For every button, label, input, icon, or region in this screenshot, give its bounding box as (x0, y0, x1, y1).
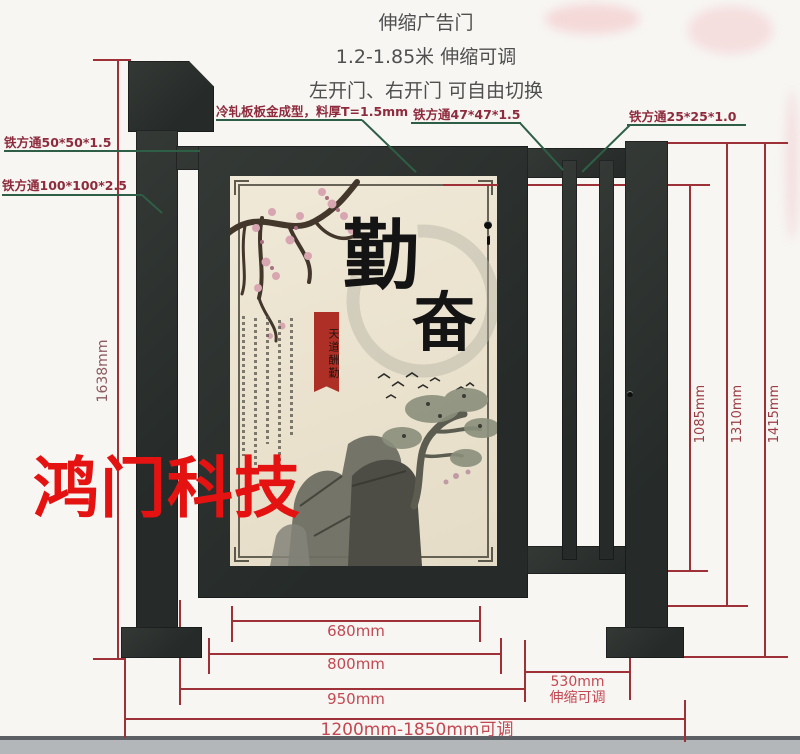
poster-char-fen: 奋 (412, 292, 476, 356)
dim-line (208, 638, 210, 674)
dim-line (93, 59, 131, 61)
watermark: 鸿门科技 (33, 456, 301, 522)
dim-total-width: 1200mm-1850mm可调 (307, 722, 527, 738)
dim-inner-height: 1085mm (693, 379, 709, 449)
poster-char-qin: 勤 (343, 218, 419, 294)
dim-ext-note: 伸缩可调 (530, 690, 625, 706)
callout-tube50: 铁方通50*50*1.5 (4, 132, 112, 151)
leader-line (411, 122, 521, 124)
poster-text-column (266, 316, 269, 444)
poster-text-column (242, 316, 245, 456)
right-post-base (606, 627, 684, 658)
poster-seal: 天道酬勤 (314, 312, 339, 392)
leader-line (2, 194, 142, 196)
dim-line (231, 606, 233, 642)
door-lock (484, 221, 492, 229)
dim-line (689, 184, 691, 571)
product-note: 左开门、右开门 可自由切换 (254, 76, 598, 103)
dim-fence-height: 1310mm (730, 379, 746, 449)
dim-line (479, 606, 481, 642)
dim-line (124, 658, 126, 738)
dim-line (764, 142, 766, 657)
floor-strip (0, 740, 800, 754)
left-post-base (121, 627, 202, 658)
dim-post-height: 1415mm (767, 379, 783, 449)
dim-total-height: 1638mm (95, 336, 111, 406)
leader-line (216, 119, 362, 121)
leader-line (4, 150, 200, 152)
poster-text-column (278, 320, 281, 466)
dim-line (524, 671, 631, 673)
post-lock (627, 391, 633, 397)
dim-line (726, 142, 728, 606)
dim-poster-width: 680mm (306, 623, 406, 639)
dim-line (93, 658, 126, 660)
pink-smudge (688, 6, 773, 54)
dim-door-width: 800mm (306, 656, 406, 672)
dim-line (678, 656, 788, 658)
door-lock-slot (487, 235, 490, 245)
dim-line (443, 184, 498, 186)
callout-tube25: 铁方通25*25*1.0 (629, 106, 737, 125)
callout-cold-plate: 冷轧板板金成型，料厚T=1.5mm (216, 101, 408, 120)
dim-door-total-width: 950mm (306, 691, 406, 707)
leader-line (627, 124, 746, 126)
dim-line (500, 638, 502, 674)
pink-smudge (786, 90, 798, 240)
gate-diagram: 伸缩广告门 1.2-1.85米 伸缩可调 左开门、右开门 可自由切换 1638m… (0, 0, 800, 754)
fence-bar (562, 160, 577, 560)
motor-housing (128, 61, 214, 132)
callout-tube100: 铁方通100*100*2.5 (2, 175, 127, 194)
poster-text-column (290, 318, 293, 436)
poster-text-column (254, 318, 257, 468)
fence-bar (599, 160, 614, 560)
dim-ext-width: 530mm (530, 674, 625, 690)
product-title: 伸缩广告门 (254, 8, 598, 35)
left-post (136, 130, 178, 630)
dim-line (684, 700, 686, 742)
product-range: 1.2-1.85米 伸缩可调 (254, 42, 598, 69)
right-post (625, 141, 668, 630)
callout-tube47: 铁方通47*47*1.5 (413, 104, 521, 123)
